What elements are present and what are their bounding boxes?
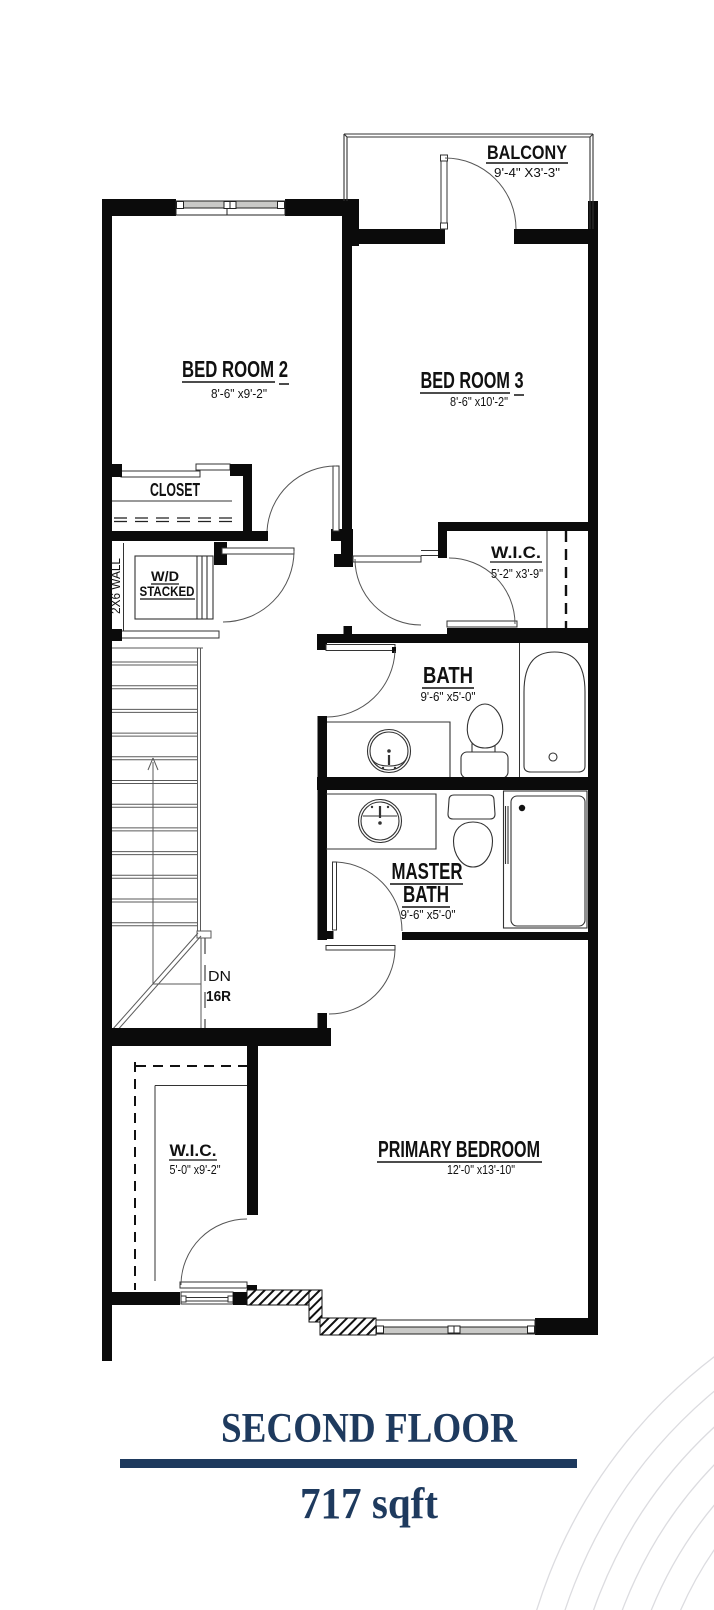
svg-text:STACKED: STACKED xyxy=(140,583,195,599)
svg-text:W.I.C.: W.I.C. xyxy=(170,1141,217,1160)
svg-text:W.I.C.: W.I.C. xyxy=(491,543,541,562)
svg-text:5'-2" x3'-9": 5'-2" x3'-9" xyxy=(491,566,543,581)
svg-text:DN: DN xyxy=(208,968,231,985)
svg-text:16R: 16R xyxy=(206,988,231,1005)
svg-text:9'-6" x5'-0": 9'-6" x5'-0" xyxy=(401,907,456,922)
svg-text:BED ROOM 2: BED ROOM 2 xyxy=(182,356,288,382)
svg-text:W/D: W/D xyxy=(151,568,179,584)
svg-text:BED ROOM 3: BED ROOM 3 xyxy=(421,367,524,393)
svg-text:PRIMARY BEDROOM: PRIMARY BEDROOM xyxy=(378,1136,540,1162)
svg-text:BATH: BATH xyxy=(423,662,473,688)
svg-text:BATH: BATH xyxy=(403,881,449,907)
svg-text:9'-6" x5'-0": 9'-6" x5'-0" xyxy=(421,689,476,704)
svg-text:2X6 WALL: 2X6 WALL xyxy=(108,558,123,614)
svg-text:5'-0" x9'-2": 5'-0" x9'-2" xyxy=(170,1162,221,1177)
svg-text:SECOND FLOOR: SECOND FLOOR xyxy=(221,1406,518,1452)
svg-text:CLOSET: CLOSET xyxy=(150,480,200,500)
svg-text:8'-6" x10'-2": 8'-6" x10'-2" xyxy=(450,394,508,409)
svg-text:717 sqft: 717 sqft xyxy=(300,1479,438,1528)
svg-text:BALCONY: BALCONY xyxy=(487,143,567,164)
svg-text:8'-6" x9'-2": 8'-6" x9'-2" xyxy=(211,386,267,401)
svg-text:12'-0" x13'-10": 12'-0" x13'-10" xyxy=(447,1162,515,1177)
svg-text:9'-4" X3'-3": 9'-4" X3'-3" xyxy=(494,165,560,180)
